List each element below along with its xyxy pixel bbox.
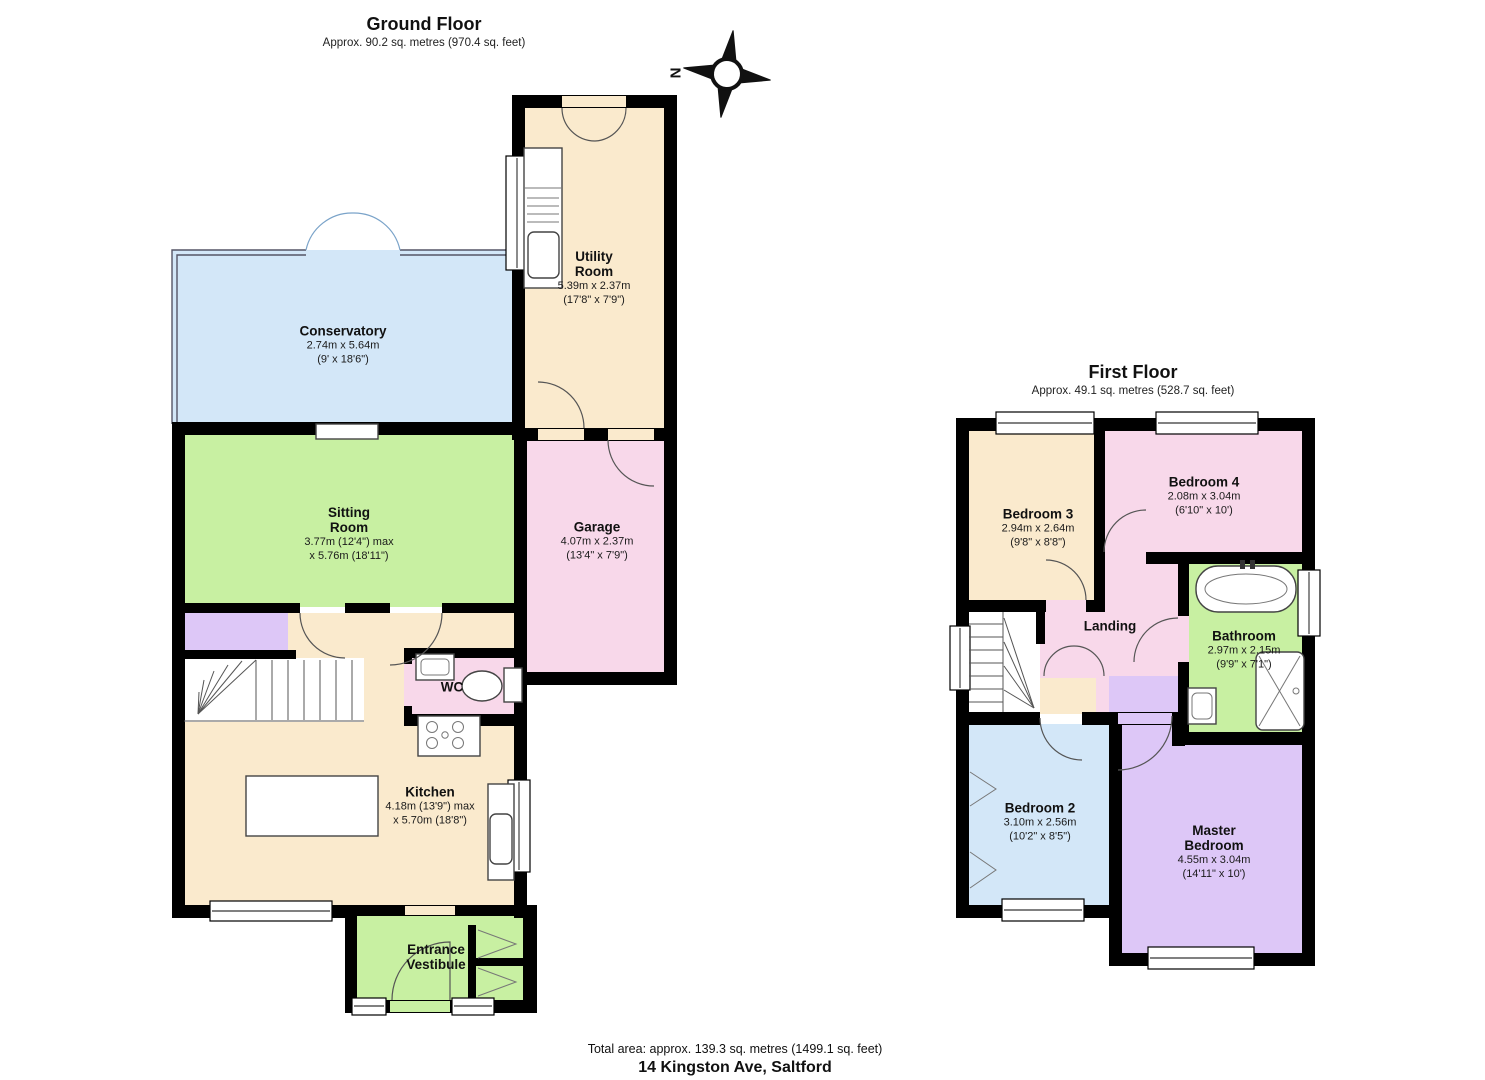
airing-cupboard — [1040, 678, 1096, 714]
wall-segment — [956, 718, 969, 917]
fireplace — [316, 424, 378, 439]
door-opening — [562, 96, 626, 107]
room-sitting — [184, 430, 514, 607]
compass-circle-icon — [710, 57, 744, 91]
understairs-closet — [184, 613, 288, 650]
toilet-bowl — [462, 671, 502, 701]
room-conservatory — [172, 250, 514, 424]
wall-segment — [1109, 718, 1122, 966]
wall-segment — [1082, 712, 1109, 725]
wc-sink — [416, 654, 454, 680]
wall-segment — [524, 672, 677, 685]
bathtub — [1196, 566, 1296, 612]
wall-segment — [172, 422, 185, 918]
wall-segment — [1178, 732, 1315, 745]
wall-segment — [664, 95, 677, 685]
wall-segment — [1036, 612, 1045, 644]
wall-segment — [956, 600, 1046, 612]
kitchen-island — [246, 776, 378, 836]
ground-floor-title-block: Ground Floor Approx. 90.2 sq. metres (97… — [323, 14, 526, 49]
wall-segment — [1146, 552, 1315, 564]
bath-tap — [1240, 560, 1245, 569]
wall-segment — [345, 603, 390, 613]
door-arc — [353, 213, 400, 250]
wall-segment — [523, 905, 537, 1013]
door-opening — [1118, 713, 1172, 724]
door-opening — [1178, 616, 1189, 662]
address-text: 14 Kingston Ave, Saltford — [638, 1059, 832, 1077]
footer-total-area: Total area: approx. 139.3 sq. metres (14… — [588, 1042, 883, 1056]
room-bedroom3 — [969, 430, 1094, 600]
total-area-text: Total area: approx. 139.3 sq. metres (14… — [588, 1042, 883, 1056]
stairs-gf-area — [184, 658, 364, 722]
room-vestibule — [355, 905, 523, 1008]
door-opening — [405, 906, 455, 915]
floorplan-page: { "floors": [ { "name": "Ground Floor", … — [0, 0, 1485, 1080]
first-floor-area: Approx. 49.1 sq. metres (528.7 sq. feet) — [1032, 385, 1235, 397]
door-opening — [404, 664, 412, 706]
room-garage — [526, 440, 664, 672]
compass-rose — [677, 24, 776, 123]
wall-segment — [1094, 430, 1105, 612]
window — [352, 998, 386, 1015]
room-bedroom4 — [1105, 430, 1302, 552]
door-arc — [306, 213, 353, 250]
room-master-bedroom — [1121, 724, 1302, 953]
wall-segment — [956, 712, 1040, 725]
utility-sink — [528, 232, 559, 278]
first-floor-title: First Floor — [1032, 362, 1235, 383]
ground-floor-title: Ground Floor — [323, 14, 526, 35]
hall-nook — [1109, 676, 1178, 714]
door-opening — [538, 429, 584, 440]
wall-segment — [184, 650, 296, 659]
hob — [418, 716, 480, 756]
door-opening — [608, 429, 654, 440]
floor-plan-ground — [172, 95, 677, 1015]
hallway-strip — [364, 652, 404, 726]
compass-north-label: N — [668, 68, 685, 79]
floor-plan-first — [950, 412, 1320, 969]
bath-tap — [1250, 560, 1255, 569]
window — [452, 998, 494, 1015]
wall-segment — [442, 603, 514, 613]
wall-segment — [184, 603, 300, 613]
door-opening — [390, 1001, 450, 1012]
ground-floor-area: Approx. 90.2 sq. metres (970.4 sq. feet) — [323, 37, 526, 49]
first-floor-title-block: First Floor Approx. 49.1 sq. metres (528… — [1032, 362, 1235, 397]
room-bedroom2 — [969, 724, 1109, 905]
wall-segment — [468, 958, 524, 966]
kitchen-sink — [490, 814, 512, 864]
toilet-cistern — [504, 668, 522, 702]
floor-plan-canvas — [0, 0, 1485, 1080]
footer-address: 14 Kingston Ave, Saltford — [638, 1059, 832, 1077]
wall-segment — [1086, 600, 1105, 612]
